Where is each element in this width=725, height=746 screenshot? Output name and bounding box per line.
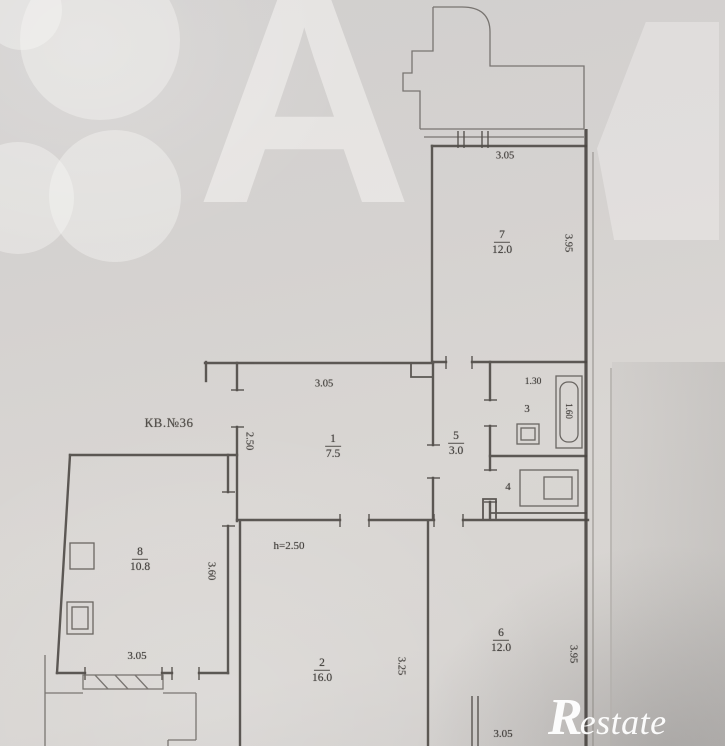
room-area: 12.0	[491, 641, 511, 655]
room-label-6: 6 12.0	[491, 627, 511, 655]
floorplan-photo: А	[0, 0, 725, 746]
room-label-5: 5 3.0	[448, 430, 464, 458]
balcony-top-outline	[403, 7, 584, 137]
kitchen-window	[83, 675, 163, 689]
dimension-label: 3.60	[206, 562, 217, 580]
room-label-2: 2 16.0	[312, 657, 332, 685]
room-area: 3.0	[449, 444, 463, 458]
room-area: 7.5	[326, 447, 340, 461]
room-number: 6	[493, 627, 509, 641]
dimension-label: 3.05	[127, 650, 146, 662]
room-number: 2	[314, 657, 330, 671]
restate-logo-initial: R	[548, 692, 583, 744]
dimension-label: 3.95	[563, 234, 574, 252]
kitchen-sink-icon	[67, 602, 93, 634]
dimension-label: 3.05	[315, 379, 333, 390]
room-label-8: 8 10.8	[130, 546, 150, 574]
room-number: 5	[448, 430, 464, 444]
ceiling-height-note: h=2.50	[274, 540, 305, 552]
dimension-label: 3.95	[568, 645, 579, 663]
kitchen-stove-icon	[70, 543, 94, 569]
bottom-wall-stub	[472, 696, 478, 746]
floorplan-drawing	[0, 0, 725, 746]
room-area: 16.0	[312, 671, 332, 685]
room-label-4: 4	[505, 481, 511, 493]
room-number: 8	[132, 546, 148, 560]
restate-logo-text: estate	[580, 704, 667, 740]
room-number: 1	[325, 433, 341, 447]
dimension-label: 1.30	[525, 377, 542, 387]
room-area: 12.0	[492, 243, 512, 257]
apartment-number-label: КВ.№36	[145, 415, 194, 431]
balcony-bottom-outline	[45, 655, 196, 746]
toilet-icon	[517, 424, 539, 444]
door-ticks	[85, 356, 497, 680]
room-label-7: 7 12.0	[492, 229, 512, 257]
dimension-label: 2.50	[244, 432, 255, 450]
dimension-label: 3.05	[493, 728, 512, 740]
room-area: 10.8	[130, 560, 150, 574]
sink-icon	[520, 470, 578, 506]
restate-logo: Restate	[548, 692, 725, 746]
room-label-1: 1 7.5	[325, 433, 341, 461]
dimension-label: 3.25	[396, 657, 407, 675]
dimension-label: 1.60	[564, 403, 574, 419]
room-number: 7	[494, 229, 510, 243]
dimension-label: 3.05	[496, 151, 514, 162]
room-label-3: 3	[524, 403, 530, 415]
